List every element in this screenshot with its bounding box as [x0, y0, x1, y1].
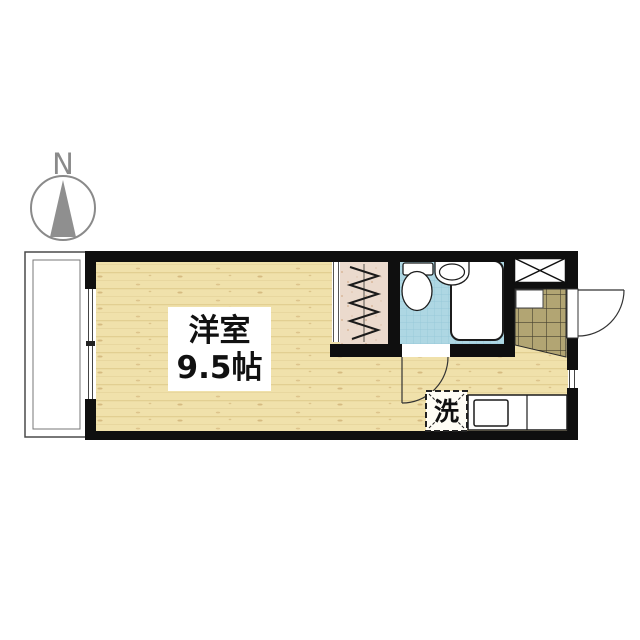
room-name: 洋室 [189, 313, 251, 349]
kitchen-counter [468, 395, 567, 430]
floorplan-canvas: N [0, 0, 640, 640]
room-size: 9.5帖 [177, 350, 263, 386]
meter-box [514, 258, 566, 283]
north-arrow-icon [50, 180, 76, 237]
entrance [515, 289, 566, 357]
balcony [25, 252, 88, 437]
shoe-cabinet-icon [516, 290, 543, 308]
room-label: 洋室 9.5帖 [168, 307, 271, 391]
door-swing-arc [578, 290, 624, 336]
sink-basin-icon [440, 264, 465, 280]
laundry-label: 洗 [434, 397, 459, 426]
window-latch-icon [86, 341, 95, 346]
balcony-window [85, 289, 96, 399]
washing-machine-space: 洗 [426, 391, 467, 431]
kitchen-sink-icon [474, 400, 508, 426]
toilet-bowl-icon [402, 272, 432, 311]
kitchen-window [570, 370, 575, 388]
compass: N [31, 147, 95, 240]
entrance-door [567, 289, 624, 338]
